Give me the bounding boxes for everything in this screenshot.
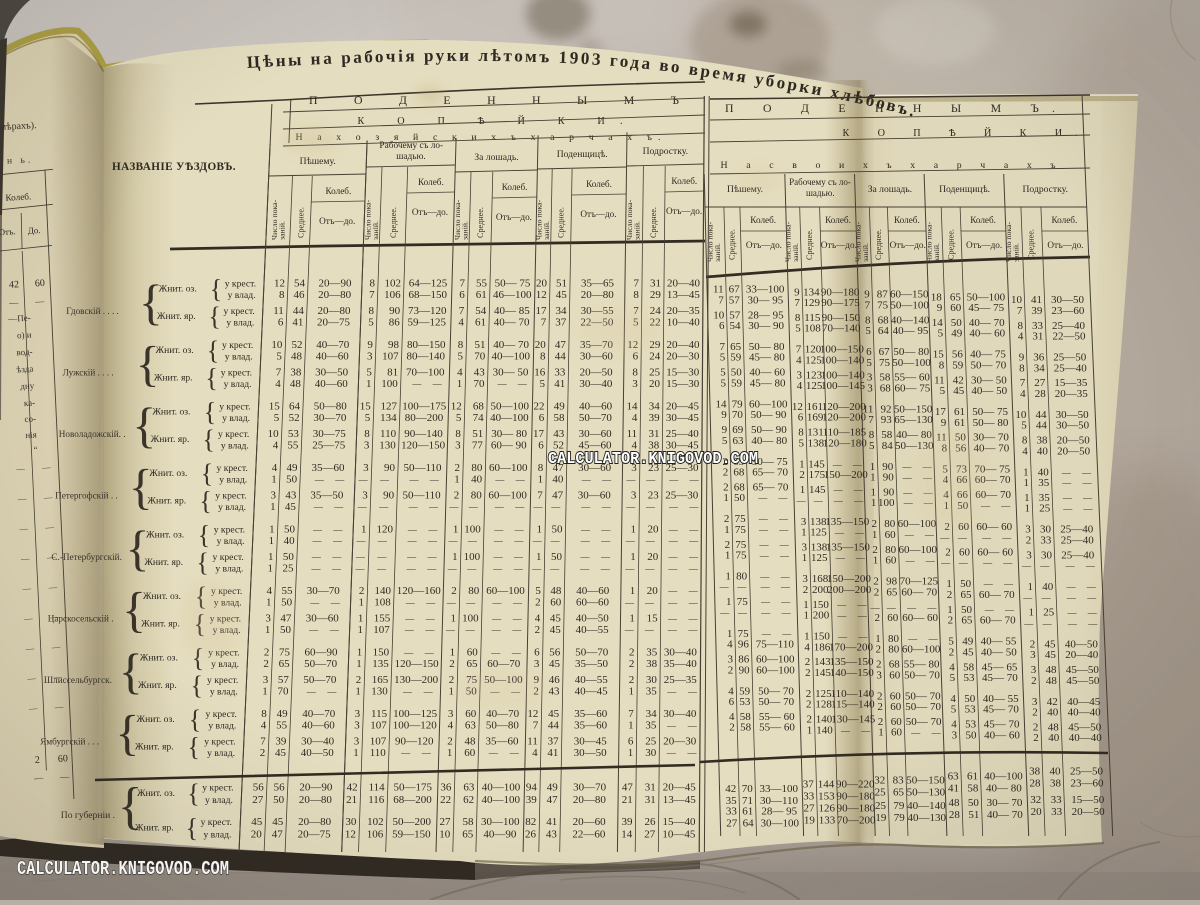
- svg-text:CALCULATOR.KNIGOVOD.COM: CALCULATOR.KNIGOVOD.COM: [17, 858, 229, 880]
- svg-text:CALCULATOR.KNIGOVOD.COM: CALCULATOR.KNIGOVOD.COM: [548, 449, 758, 468]
